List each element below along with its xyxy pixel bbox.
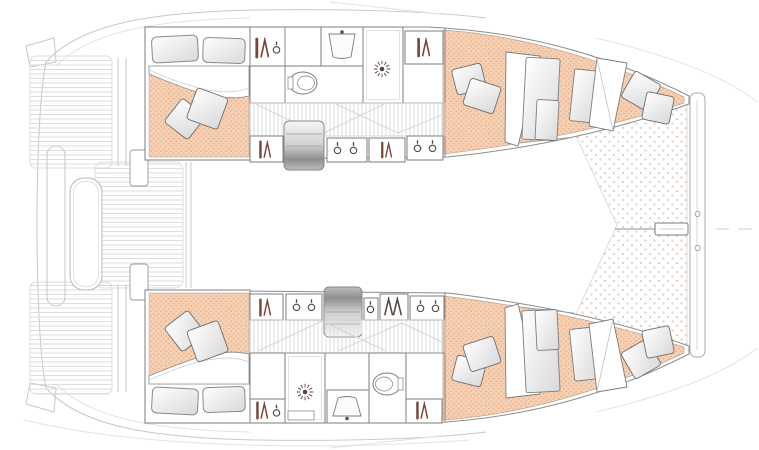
port-aft-cabin xyxy=(145,27,250,160)
pillow xyxy=(151,387,198,415)
cabinet xyxy=(285,27,321,66)
wardrobe xyxy=(380,294,408,320)
berth-panel xyxy=(535,309,559,350)
starboard-transom-lines xyxy=(118,284,126,392)
toilet-flush-plate xyxy=(398,378,403,390)
locker xyxy=(327,138,367,162)
faucet xyxy=(345,417,349,421)
catamaran-floor-plan xyxy=(0,0,759,450)
port-transom-lines xyxy=(118,58,126,166)
shower-stall xyxy=(363,27,403,103)
crossbeam-fitting-bottom xyxy=(695,246,700,251)
saloon-door-track xyxy=(186,162,191,288)
locker xyxy=(364,298,378,320)
cabinet xyxy=(250,66,285,103)
starboard-aft-cabin xyxy=(145,290,250,423)
toilet-compartment xyxy=(369,353,406,423)
coachroof-edge-bottom xyxy=(330,436,440,448)
washbasin-icon xyxy=(329,34,355,59)
bow-area xyxy=(576,93,752,357)
shower-stall xyxy=(285,353,325,423)
locker xyxy=(407,136,443,160)
companionway-steps xyxy=(284,121,324,170)
locker xyxy=(286,294,322,320)
transom-steps-starboard xyxy=(30,282,112,394)
berth-panel xyxy=(535,99,559,140)
floor-plan-canvas xyxy=(0,0,759,450)
cushion xyxy=(641,91,674,124)
corridor-floor xyxy=(250,320,445,353)
washbasin-unit xyxy=(327,390,369,423)
crossbeam-fitting-top xyxy=(695,212,700,217)
coachroof-edge-top xyxy=(330,2,440,14)
cabinet xyxy=(250,353,285,399)
locker xyxy=(250,27,285,66)
shower-walls xyxy=(363,27,403,103)
corridor-floor xyxy=(250,103,445,136)
toilet-icon xyxy=(373,373,401,395)
transom-steps-port xyxy=(30,56,112,168)
waterline-aft xyxy=(24,420,470,446)
faucet xyxy=(340,30,344,34)
washbasin-icon xyxy=(333,397,361,417)
pillow xyxy=(151,35,198,63)
pillow xyxy=(203,386,246,412)
shower-bench xyxy=(288,411,314,420)
cushion xyxy=(641,325,674,358)
toilet-flush-plate xyxy=(288,77,293,89)
pillow xyxy=(203,37,246,63)
washbasin-unit xyxy=(321,27,363,66)
cockpit-table xyxy=(70,178,102,290)
